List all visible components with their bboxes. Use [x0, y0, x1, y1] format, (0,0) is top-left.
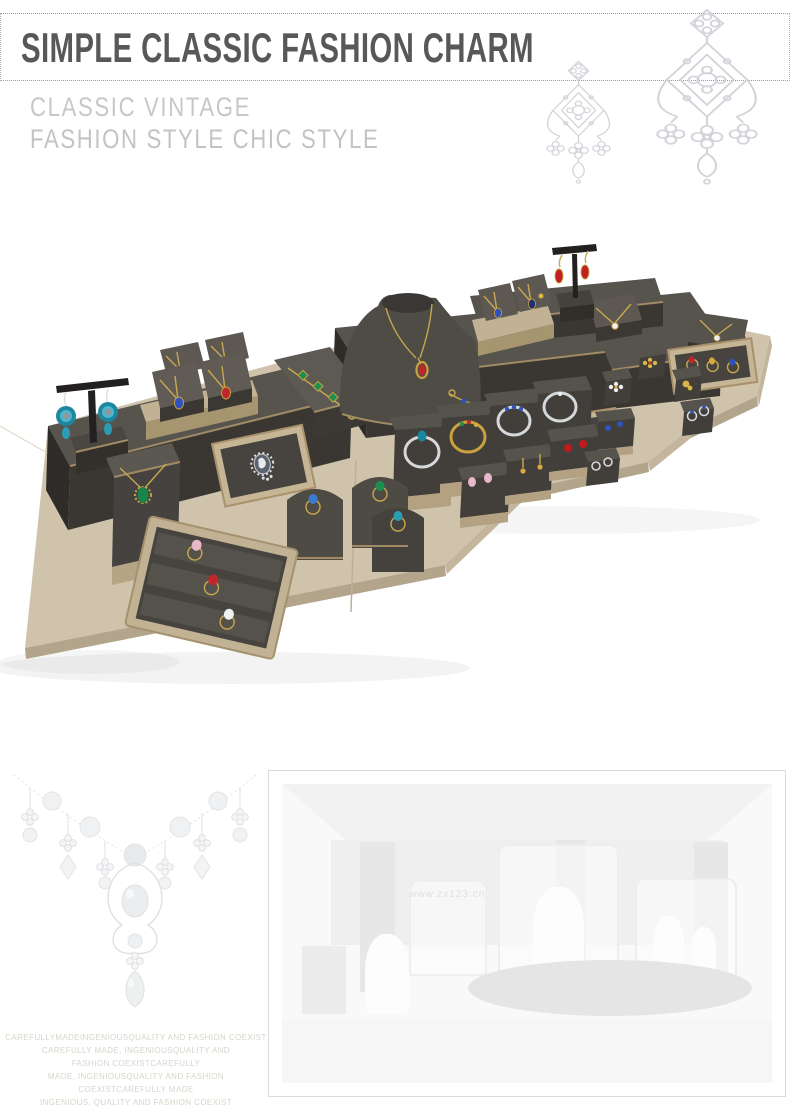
white-fade-overlay	[282, 784, 772, 1083]
ornament-small	[547, 61, 610, 183]
necklace-medallion	[108, 863, 162, 1007]
white-gem-wedge	[588, 294, 642, 342]
page-title: SIMPLE CLASSIC FASHION CHARM	[21, 24, 534, 72]
promo-page: { "header": { "title": "SIMPLE CLASSIC F…	[0, 0, 790, 1120]
subtitle-line-2: FASHION STYLE CHIC STYLE	[30, 124, 379, 155]
subtitle-line-1: CLASSIC VINTAGE	[30, 92, 251, 123]
pearl-necklace-illustration	[0, 763, 270, 1025]
footer-line: CAREFULLYMADEINGENIOUSQUALITY AND FASHIO…	[5, 1031, 267, 1044]
footer-slogan-block: CAREFULLYMADEINGENIOUSQUALITY AND FASHIO…	[5, 1031, 267, 1109]
footer-line: INGENIOUS, QUALITY AND FASHION COEXIST	[5, 1096, 267, 1109]
store-photo-frame: www.zx123.cn	[268, 770, 786, 1097]
store-photo: www.zx123.cn	[282, 784, 772, 1083]
ornament-large	[657, 10, 756, 184]
footer-line: MADE, INGENIOUSQUALITY AND FASHION COEXI…	[5, 1070, 267, 1096]
footer-line: FASHION COEXISTCAREFULLY	[5, 1057, 267, 1070]
chandelier-ornaments-icon	[520, 2, 786, 200]
jewelry-display-set-photo: .ft{fill:#57534d}.ff{fill:#3a3733}.fs{fi…	[0, 200, 790, 720]
footer-line: CAREFULLY MADE, INGENIOUSQUALITY AND	[5, 1044, 267, 1057]
